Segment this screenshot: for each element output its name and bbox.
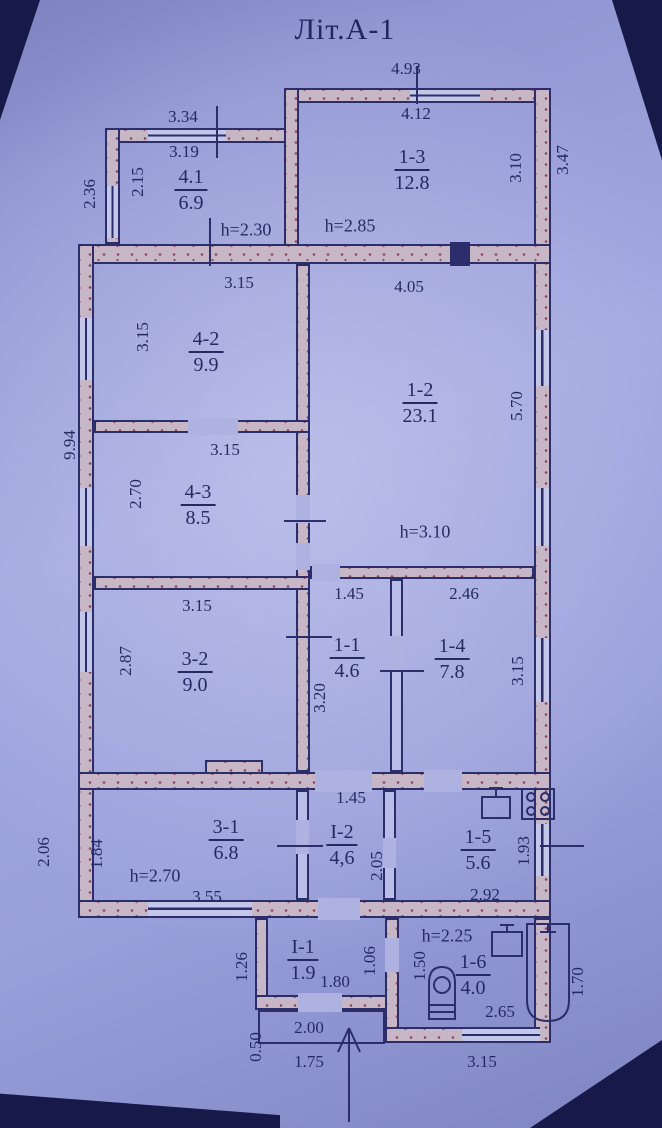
dimension-tick — [216, 106, 218, 158]
dim-label: 2.65 — [485, 1002, 515, 1022]
room-label-1-1: 1-1 4.6 — [330, 634, 365, 682]
height-label: h=3.10 — [400, 522, 451, 543]
wall — [284, 88, 299, 264]
dim-label: 3.15 — [133, 322, 153, 352]
dim-label: 1.06 — [360, 946, 380, 976]
dimension-tick — [284, 520, 326, 522]
room-label-I-1: I-1 1.9 — [287, 936, 318, 984]
dim-label: 1.70 — [568, 967, 588, 997]
door-opening — [298, 993, 342, 1012]
bathtub-icon — [525, 922, 571, 1024]
dim-label: 1.75 — [294, 1052, 324, 1072]
room-id: 1-1 — [330, 634, 365, 659]
dim-label: 4.12 — [401, 104, 431, 124]
plan-title: Літ.А-1 — [295, 13, 396, 47]
room-id: 4.1 — [175, 166, 208, 191]
room-label-1-6: 1-6 4.0 — [456, 951, 491, 999]
wall-notch — [205, 760, 263, 774]
room-label-3-2: 3-2 9.0 — [178, 648, 213, 696]
dim-label: 4.05 — [394, 277, 424, 297]
dim-label: 3.15 — [182, 596, 212, 616]
room-label-4-2: 4-2 9.9 — [189, 328, 224, 376]
toilet-icon — [425, 963, 459, 1021]
room-label-3-1: 3-1 6.8 — [209, 816, 244, 864]
floor-plan-scan: Літ.А-1 — [0, 0, 662, 1128]
room-area: 1.9 — [287, 961, 318, 984]
dim-label: 2.06 — [34, 837, 54, 867]
room-area: 6.9 — [175, 191, 208, 214]
door-opening — [296, 543, 310, 570]
room-id: 1-2 — [403, 379, 438, 404]
room-area: 8.5 — [181, 506, 216, 529]
door-opening — [424, 770, 462, 792]
window — [534, 824, 551, 876]
wall — [385, 918, 399, 1043]
window — [462, 1027, 540, 1043]
room-label-4-1: 4.1 6.9 — [175, 166, 208, 214]
room-id: 4-2 — [189, 328, 224, 353]
window — [78, 612, 94, 672]
room-area: 5.6 — [461, 851, 496, 874]
height-label: h=2.25 — [422, 926, 473, 947]
room-id: 1-6 — [456, 951, 491, 976]
dimension-tick — [540, 845, 584, 847]
door-opening — [296, 820, 309, 854]
room-area: 12.8 — [395, 171, 430, 194]
dim-label: 3.47 — [553, 145, 573, 175]
window — [78, 318, 94, 380]
room-area: 7.8 — [435, 660, 470, 683]
dim-label: 1.45 — [336, 788, 366, 808]
photo-shadow-corner — [530, 1040, 662, 1128]
room-id: I-1 — [287, 936, 318, 961]
dim-label: 5.70 — [507, 391, 527, 421]
room-id: I-2 — [326, 821, 357, 846]
dim-label: 2.87 — [116, 646, 136, 676]
dim-label: 3.19 — [169, 142, 199, 162]
door-opening — [296, 495, 310, 523]
dim-label: 3.34 — [168, 107, 198, 127]
room-label-1-2: 1-2 23.1 — [403, 379, 438, 427]
room-id: 1-3 — [395, 146, 430, 171]
washbasin-icon — [490, 922, 524, 958]
dim-label: 3.15 — [224, 273, 254, 293]
door-opening — [390, 636, 403, 670]
room-area: 4.6 — [330, 659, 365, 682]
room-id: 1-5 — [461, 826, 496, 851]
wall — [94, 576, 310, 590]
dim-label: 9.94 — [60, 430, 80, 460]
window — [105, 186, 120, 238]
photo-shadow-corner — [0, 1085, 280, 1128]
height-label: h=2.85 — [325, 216, 376, 237]
height-label: h=2.70 — [130, 866, 181, 887]
entrance-arrow-icon — [330, 1022, 370, 1126]
dim-label: 3.55 — [192, 887, 222, 907]
dim-label: 3.10 — [506, 153, 526, 183]
dim-label: 0.50 — [246, 1032, 266, 1062]
dim-label: 2.46 — [449, 584, 479, 604]
window — [534, 488, 551, 546]
photo-shadow-corner — [0, 0, 40, 120]
room-label-1-5: 1-5 5.6 — [461, 826, 496, 874]
room-id: 1-4 — [435, 635, 470, 660]
dim-label: 3.15 — [210, 440, 240, 460]
dim-label: 1.93 — [514, 836, 534, 866]
dim-label: 2.36 — [80, 179, 100, 209]
dim-label: 1.80 — [320, 972, 350, 992]
kitchen-sink-icon — [480, 784, 512, 820]
wall — [78, 244, 551, 264]
room-area: 4,6 — [326, 846, 357, 869]
room-label-I-2: I-2 4,6 — [326, 821, 357, 869]
door-opening — [312, 564, 340, 581]
dim-label: 4.93 — [391, 59, 421, 79]
room-id: 4-3 — [181, 481, 216, 506]
dim-label: 2.92 — [470, 885, 500, 905]
room-area: 9.0 — [178, 673, 213, 696]
window — [78, 488, 94, 546]
dimension-tick — [286, 636, 332, 638]
height-label: h=2.30 — [221, 220, 272, 241]
room-area: 23.1 — [403, 404, 438, 427]
dimension-tick — [277, 845, 323, 847]
room-label-4-3: 4-3 8.5 — [181, 481, 216, 529]
room-id: 3-1 — [209, 816, 244, 841]
window — [148, 128, 226, 143]
dim-label: 3.15 — [508, 656, 528, 686]
partition — [390, 579, 403, 772]
dim-label: 3.20 — [310, 683, 330, 713]
dimension-tick — [380, 670, 424, 672]
dim-label: 2.05 — [367, 851, 387, 881]
room-label-1-4: 1-4 7.8 — [435, 635, 470, 683]
window — [410, 88, 480, 103]
door-opening — [385, 938, 399, 972]
door-opening — [188, 418, 238, 435]
dimension-tick — [209, 218, 211, 266]
photo-shadow-corner — [612, 0, 662, 160]
dim-label: 2.70 — [126, 479, 146, 509]
room-label-1-3: 1-3 12.8 — [395, 146, 430, 194]
chimney-block — [450, 242, 470, 266]
dim-label: 2.15 — [128, 167, 148, 197]
door-opening — [318, 898, 360, 920]
room-area: 9.9 — [189, 353, 224, 376]
room-area: 6.8 — [209, 841, 244, 864]
window — [534, 330, 551, 386]
dim-label: 3.15 — [467, 1052, 497, 1072]
dim-label: 1.45 — [334, 584, 364, 604]
dim-label: 1.26 — [232, 952, 252, 982]
wall — [310, 566, 534, 579]
dim-label: 2.00 — [294, 1018, 324, 1038]
window — [534, 638, 551, 702]
room-area: 4.0 — [456, 976, 491, 999]
stove-icon — [521, 788, 555, 820]
dim-label: 1.84 — [87, 839, 107, 869]
room-id: 3-2 — [178, 648, 213, 673]
